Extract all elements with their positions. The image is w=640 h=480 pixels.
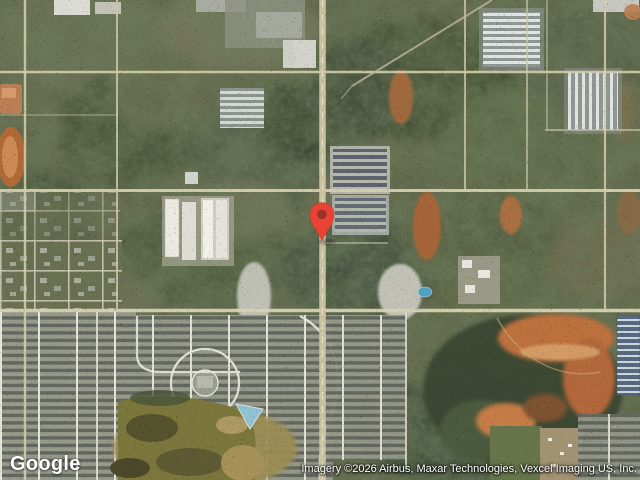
google-logo[interactable]: Google [10, 453, 81, 476]
image-grain [0, 0, 640, 480]
marker-dot [317, 210, 327, 220]
map-attribution: Imagery ©2026 Airbus, Maxar Technologies… [301, 463, 637, 475]
marker-shadow [318, 239, 336, 245]
satellite-imagery [0, 0, 640, 480]
map-canvas[interactable]: Google Imagery ©2026 Airbus, Maxar Techn… [0, 0, 640, 480]
